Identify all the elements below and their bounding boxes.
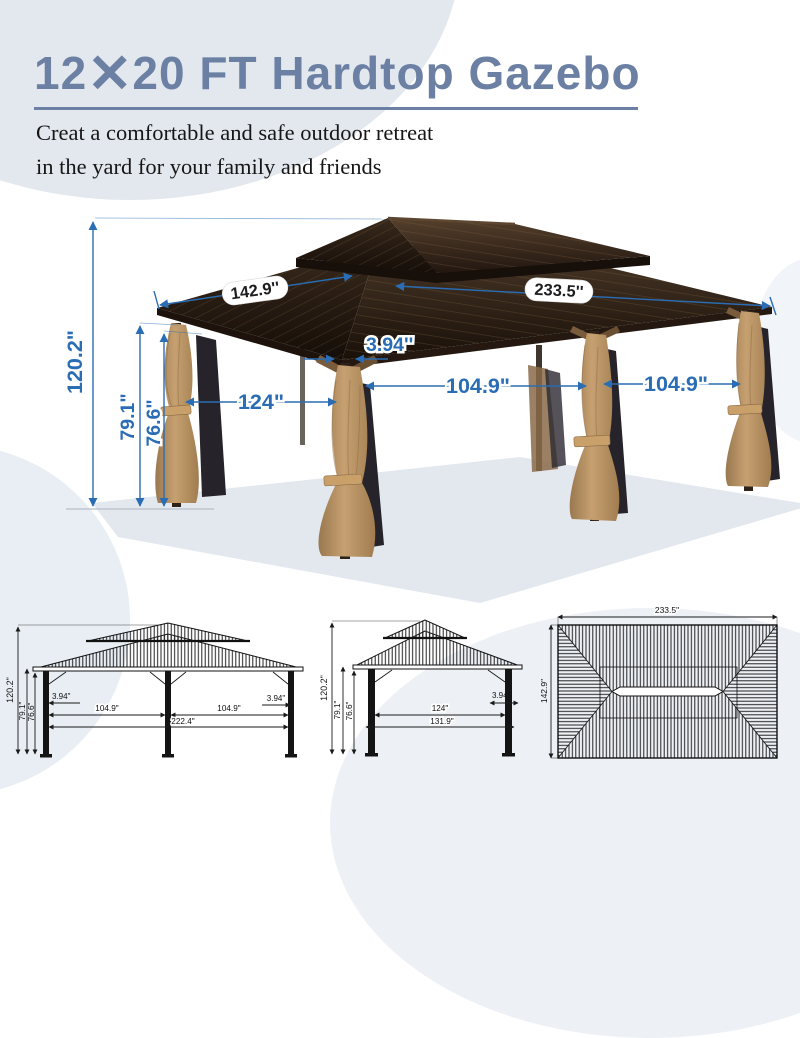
post-left [155, 323, 226, 507]
top-view-drawing: 233.5" 142.9" [539, 605, 777, 758]
dim-bay-left-label: 104.9" [446, 374, 510, 398]
dim-roof-width-label: 233.5'' [534, 281, 584, 302]
sv-span-label: 124" [432, 704, 449, 713]
dim-height-front-label: 79.1" [117, 393, 139, 440]
dim-height-total-label: 120.2" [63, 330, 87, 394]
fv-height-clear-label: 76.6" [27, 702, 36, 721]
fv-height-front-label: 79.1" [18, 701, 27, 720]
title-rest: 20 FT Hardtop Gazebo [132, 47, 640, 99]
page-subtitle: Creat a comfortable and safe outdoor ret… [36, 116, 636, 184]
tv-width-label: 233.5" [655, 605, 679, 615]
front-view-drawing: 120.2" 79.1" 76.6" 3.94" 104.9" 104.9" 3… [5, 623, 303, 758]
sv-post-label: 3.94" [492, 691, 511, 700]
sv-height-total-label: 120.2" [319, 675, 329, 701]
post-middle [570, 326, 628, 521]
dim-post-width-label: 3.94'' [366, 334, 413, 356]
fv-height-total-label: 120.2" [5, 677, 15, 703]
side-view-drawing: 120.2" 79.1" 76.6" 3.94" 124" 131.9" [319, 620, 522, 757]
fv-post-left-label: 3.94" [52, 692, 71, 701]
sv-height-front-label: 79.1" [333, 700, 342, 719]
fv-bay-right-label: 104.9" [217, 704, 240, 713]
dim-bay-right-label: 104.9" [644, 372, 708, 396]
post-right [726, 307, 780, 491]
subtitle-line-1: Creat a comfortable and safe outdoor ret… [36, 116, 636, 150]
dim-height-clear-label: 76.6" [143, 399, 165, 446]
title-number-1: 12 [34, 47, 87, 99]
fv-post-right-label: 3.94" [267, 694, 286, 703]
multiply-icon: ✕ [87, 44, 132, 104]
gazebo-photo-illustration: 120.2" 79.1" 76.6" 124" 104.9" 104.9" 3.… [0, 185, 800, 605]
page-title: 12✕20 FT Hardtop Gazebo [34, 42, 774, 105]
technical-drawings: 120.2" 79.1" 76.6" 3.94" 104.9" 104.9" 3… [0, 598, 800, 800]
fv-bay-left-label: 104.9" [95, 704, 118, 713]
fv-total-width-label: 222.4" [171, 717, 194, 726]
sv-total-depth-label: 131.9" [430, 717, 453, 726]
dim-side-span-label: 124" [238, 390, 284, 414]
tv-depth-label: 142.9" [539, 679, 549, 703]
title-underline [34, 107, 638, 110]
sv-height-clear-label: 76.6" [345, 701, 354, 720]
subtitle-line-2: in the yard for your family and friends [36, 150, 636, 184]
